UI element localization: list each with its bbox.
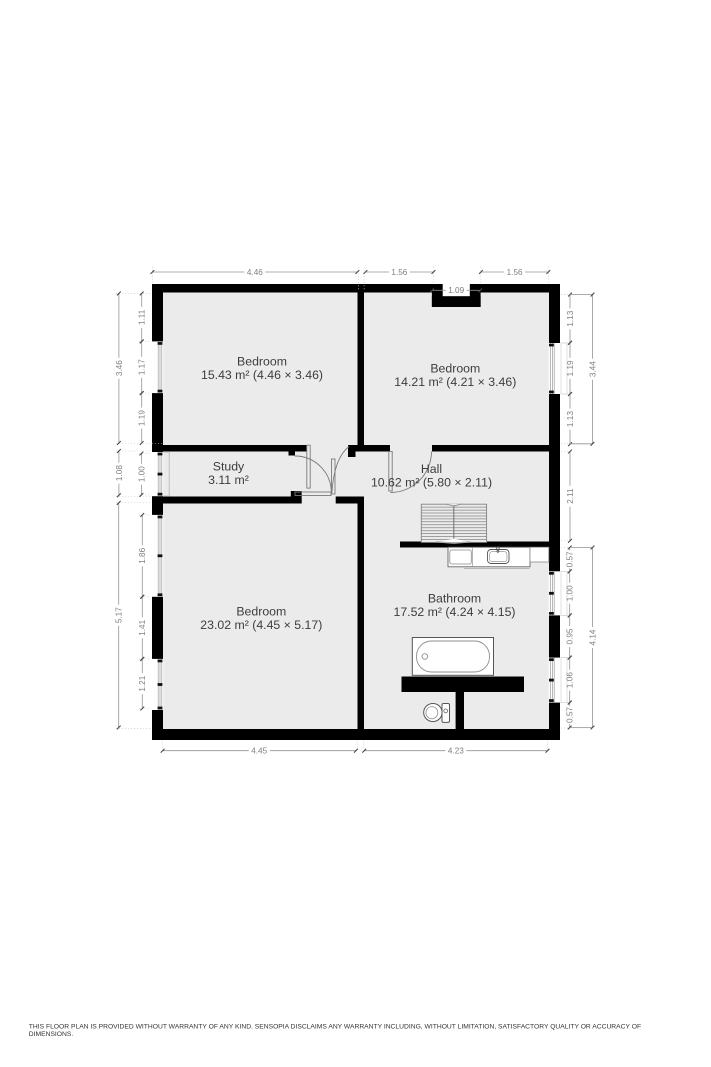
svg-text:14.21 m² (4.21 × 3.46): 14.21 m² (4.21 × 3.46) [394,375,516,389]
svg-text:1.21: 1.21 [138,675,147,691]
svg-text:Hall: Hall [421,462,442,476]
svg-text:Bedroom: Bedroom [430,362,480,376]
svg-text:DIMENSIONS.: DIMENSIONS. [29,1031,74,1038]
svg-text:1.86: 1.86 [138,547,147,563]
svg-text:1.41: 1.41 [138,619,147,635]
svg-text:4.23: 4.23 [448,747,464,756]
svg-text:4.14: 4.14 [588,629,597,645]
svg-text:Study: Study [213,460,245,474]
svg-text:Bedroom: Bedroom [236,604,286,618]
svg-text:17.52 m² (4.24 × 4.15): 17.52 m² (4.24 × 4.15) [393,605,515,619]
svg-text:1.56: 1.56 [391,268,407,277]
svg-text:Bathroom: Bathroom [428,591,481,605]
svg-text:1.13: 1.13 [566,310,575,326]
svg-text:1.11: 1.11 [138,309,147,325]
svg-text:10.62 m² (5.80 × 2.11): 10.62 m² (5.80 × 2.11) [371,476,492,490]
svg-text:1.56: 1.56 [507,268,523,277]
svg-text:1.19: 1.19 [566,360,575,376]
svg-text:1.09: 1.09 [448,286,464,295]
svg-text:23.02 m² (4.45 × 5.17): 23.02 m² (4.45 × 5.17) [200,618,322,632]
svg-text:4.45: 4.45 [251,747,267,756]
svg-text:1.19: 1.19 [138,410,147,426]
svg-text:4.46: 4.46 [247,268,263,277]
svg-text:3.11 m²: 3.11 m² [208,473,249,487]
svg-text:1.08: 1.08 [115,465,124,481]
svg-text:5.17: 5.17 [115,607,124,623]
svg-text:1.06: 1.06 [566,672,575,688]
svg-text:1.17: 1.17 [138,359,147,375]
svg-text:0.57: 0.57 [566,707,575,723]
svg-text:Bedroom: Bedroom [237,354,287,368]
svg-text:3.46: 3.46 [115,360,124,376]
svg-text:0.95: 0.95 [566,628,575,644]
svg-text:2.11: 2.11 [566,488,575,504]
svg-text:15.43 m² (4.46 × 3.46): 15.43 m² (4.46 × 3.46) [201,368,323,382]
svg-text:THIS FLOOR PLAN IS PROVIDED WI: THIS FLOOR PLAN IS PROVIDED WITHOUT WARR… [29,1024,641,1031]
svg-text:1.00: 1.00 [137,466,146,482]
svg-text:1.13: 1.13 [566,411,575,427]
svg-text:0.57: 0.57 [566,551,575,567]
svg-text:3.44: 3.44 [588,361,597,377]
svg-text:1.00: 1.00 [566,585,575,601]
